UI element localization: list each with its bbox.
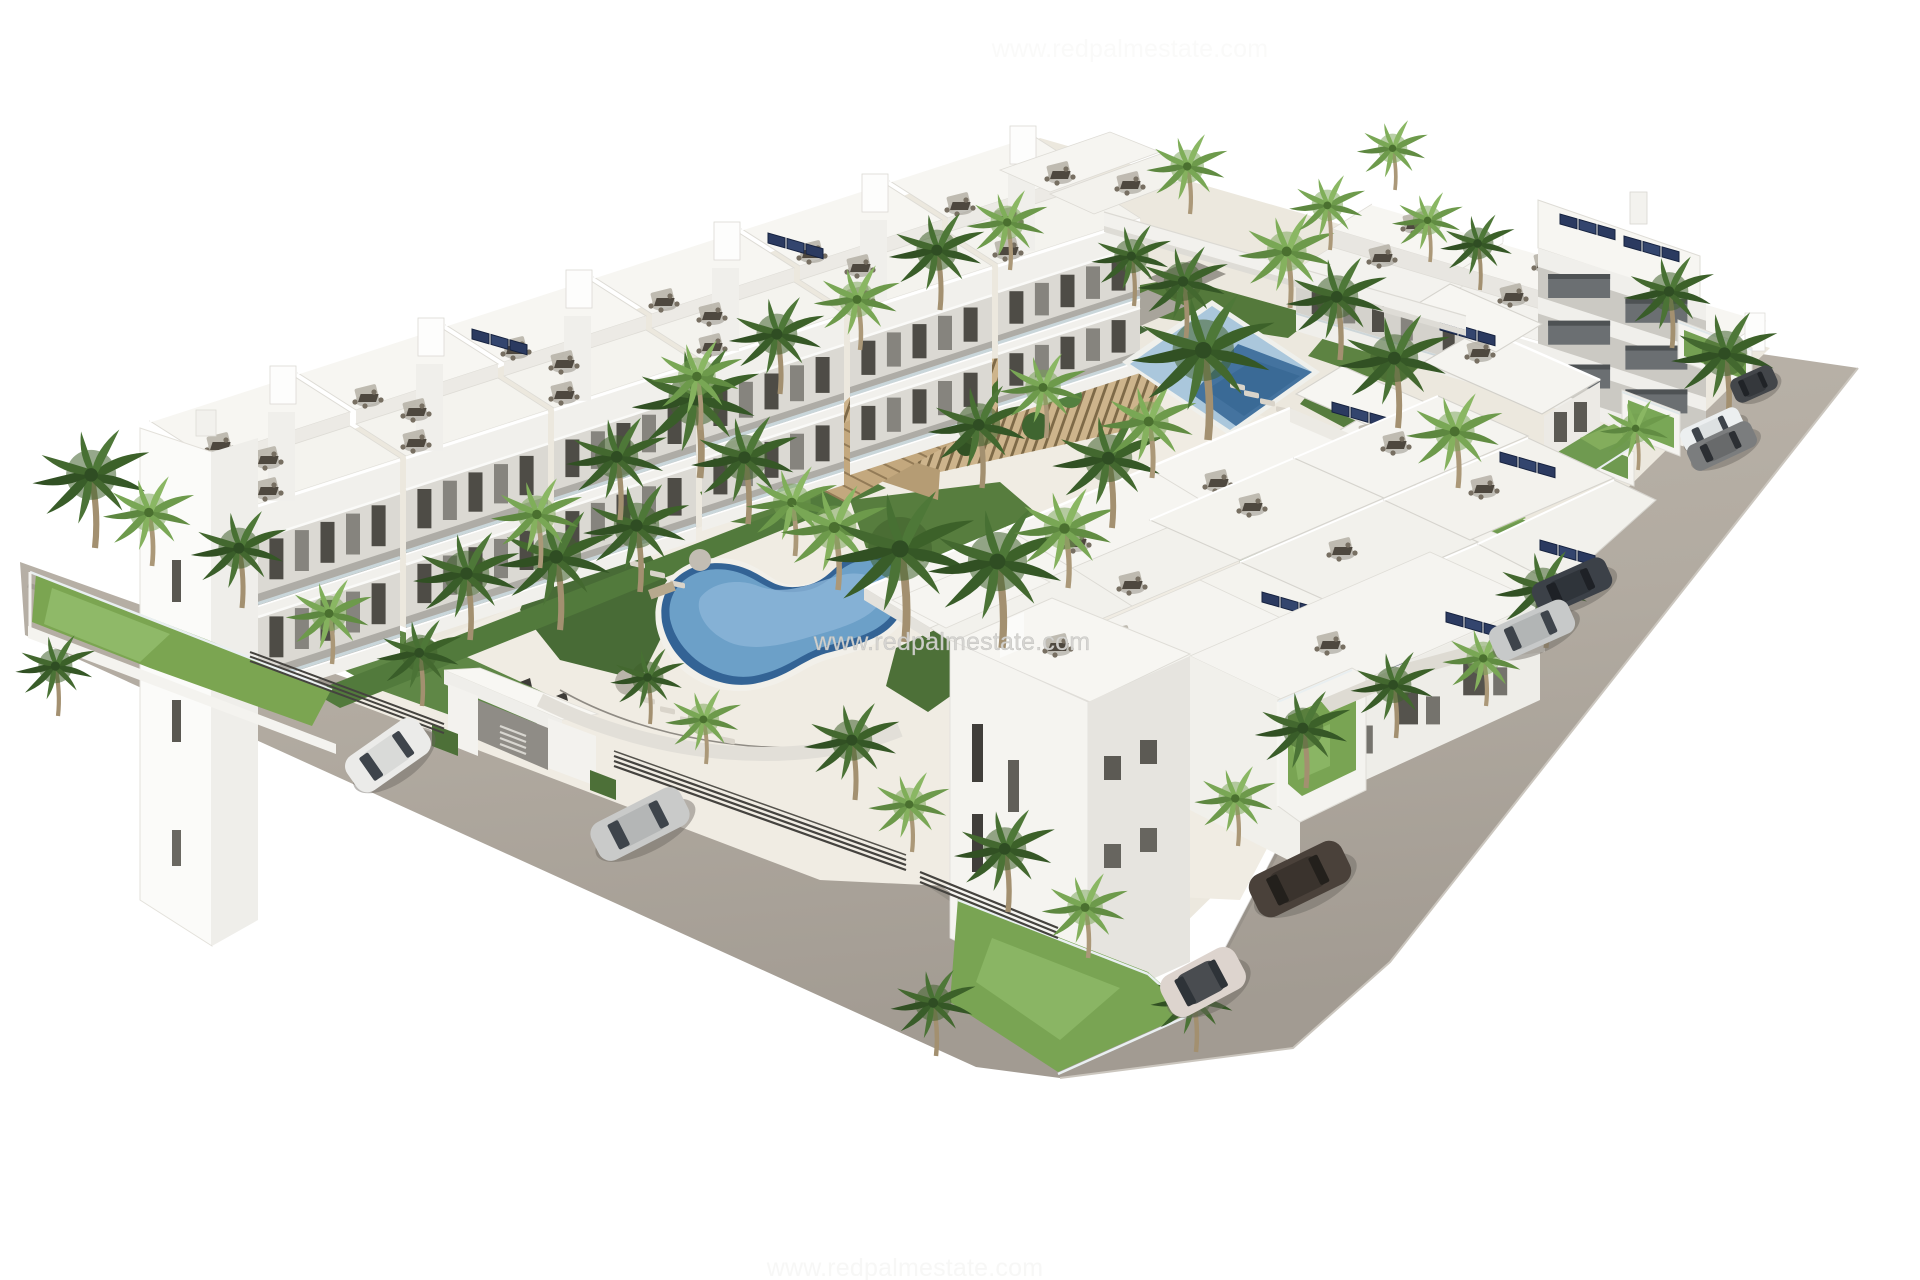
svg-text:www.redpalmestate.com: www.redpalmestate.com <box>813 628 1091 656</box>
svg-text:www.redpalmestate.com: www.redpalmestate.com <box>766 1254 1044 1280</box>
svg-text:www.redpalmestate.com: www.redpalmestate.com <box>991 35 1269 63</box>
